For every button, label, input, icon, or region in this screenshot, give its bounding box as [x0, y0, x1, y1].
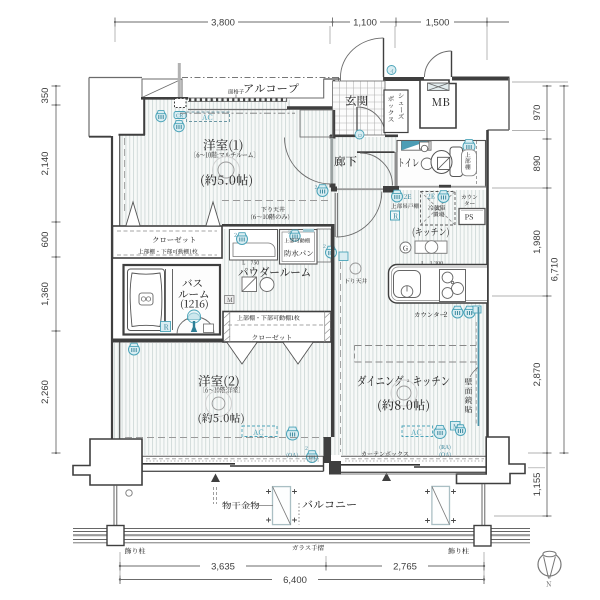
svg-text:6,710: 6,710 [550, 258, 561, 282]
svg-text:1,100: 1,100 [353, 18, 377, 29]
svg-text:600: 600 [40, 232, 51, 248]
svg-text:2,260: 2,260 [40, 380, 51, 404]
svg-text:970: 970 [532, 105, 543, 121]
svg-text:2,140: 2,140 [40, 152, 51, 176]
svg-text:1,500: 1,500 [426, 18, 450, 29]
svg-text:2,870: 2,870 [532, 363, 543, 387]
svg-text:1,155: 1,155 [532, 473, 543, 497]
svg-text:890: 890 [532, 156, 543, 172]
svg-text:3,635: 3,635 [211, 562, 235, 573]
svg-text:350: 350 [40, 88, 51, 104]
svg-text:1,360: 1,360 [40, 282, 51, 306]
svg-text:1,980: 1,980 [532, 230, 543, 254]
svg-text:3,800: 3,800 [211, 18, 235, 29]
svg-text:2,765: 2,765 [393, 562, 417, 573]
svg-text:6,400: 6,400 [283, 575, 307, 586]
